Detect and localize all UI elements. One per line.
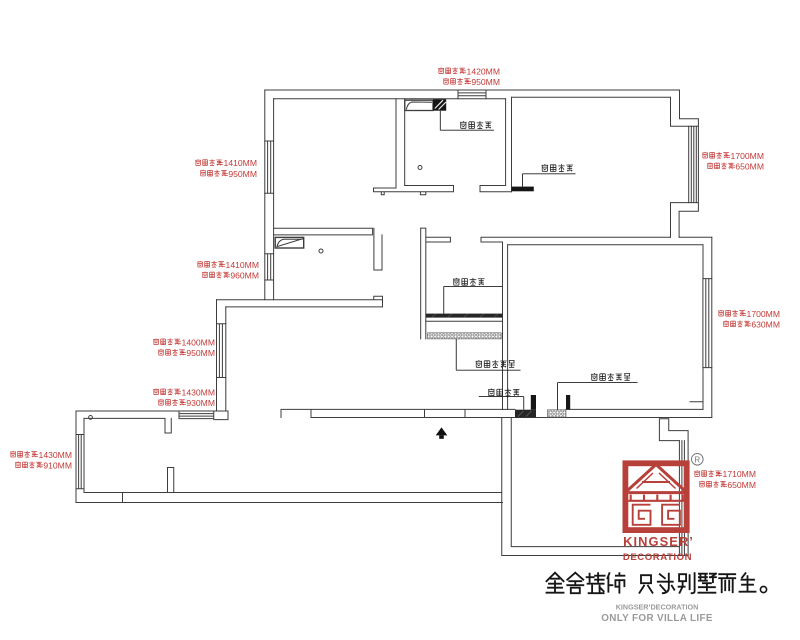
svg-text:=630MM: =630MM (746, 320, 780, 330)
svg-text:R: R (694, 456, 700, 465)
svg-text:=1400MM: =1400MM (177, 337, 215, 347)
svg-text:=650MM: =650MM (722, 480, 756, 490)
svg-text:=950MM: =950MM (181, 348, 215, 358)
svg-text:KINGSER’DECORATION: KINGSER’DECORATION (616, 602, 699, 611)
svg-text:=960MM: =960MM (225, 271, 259, 281)
svg-text:=1410MM: =1410MM (221, 260, 259, 270)
svg-text:=1420MM: =1420MM (462, 66, 500, 76)
svg-text:=1700MM: =1700MM (742, 309, 780, 319)
svg-text:KINGSER’: KINGSER’ (623, 534, 694, 549)
svg-text:=950MM: =950MM (466, 77, 500, 87)
svg-text:=910MM: =910MM (38, 461, 72, 471)
svg-text:=1700MM: =1700MM (726, 151, 764, 161)
svg-text:=1430MM: =1430MM (34, 450, 72, 460)
svg-text:ONLY FOR VILLA LIFE: ONLY FOR VILLA LIFE (601, 613, 713, 624)
svg-text:=950MM: =950MM (223, 169, 257, 179)
svg-text:=1410MM: =1410MM (219, 158, 257, 168)
svg-text:=930MM: =930MM (181, 398, 215, 408)
svg-text:=1710MM: =1710MM (718, 469, 756, 479)
svg-text:DECORATION: DECORATION (623, 552, 692, 563)
svg-text:=650MM: =650MM (730, 162, 764, 172)
svg-text:=1430MM: =1430MM (177, 387, 215, 397)
